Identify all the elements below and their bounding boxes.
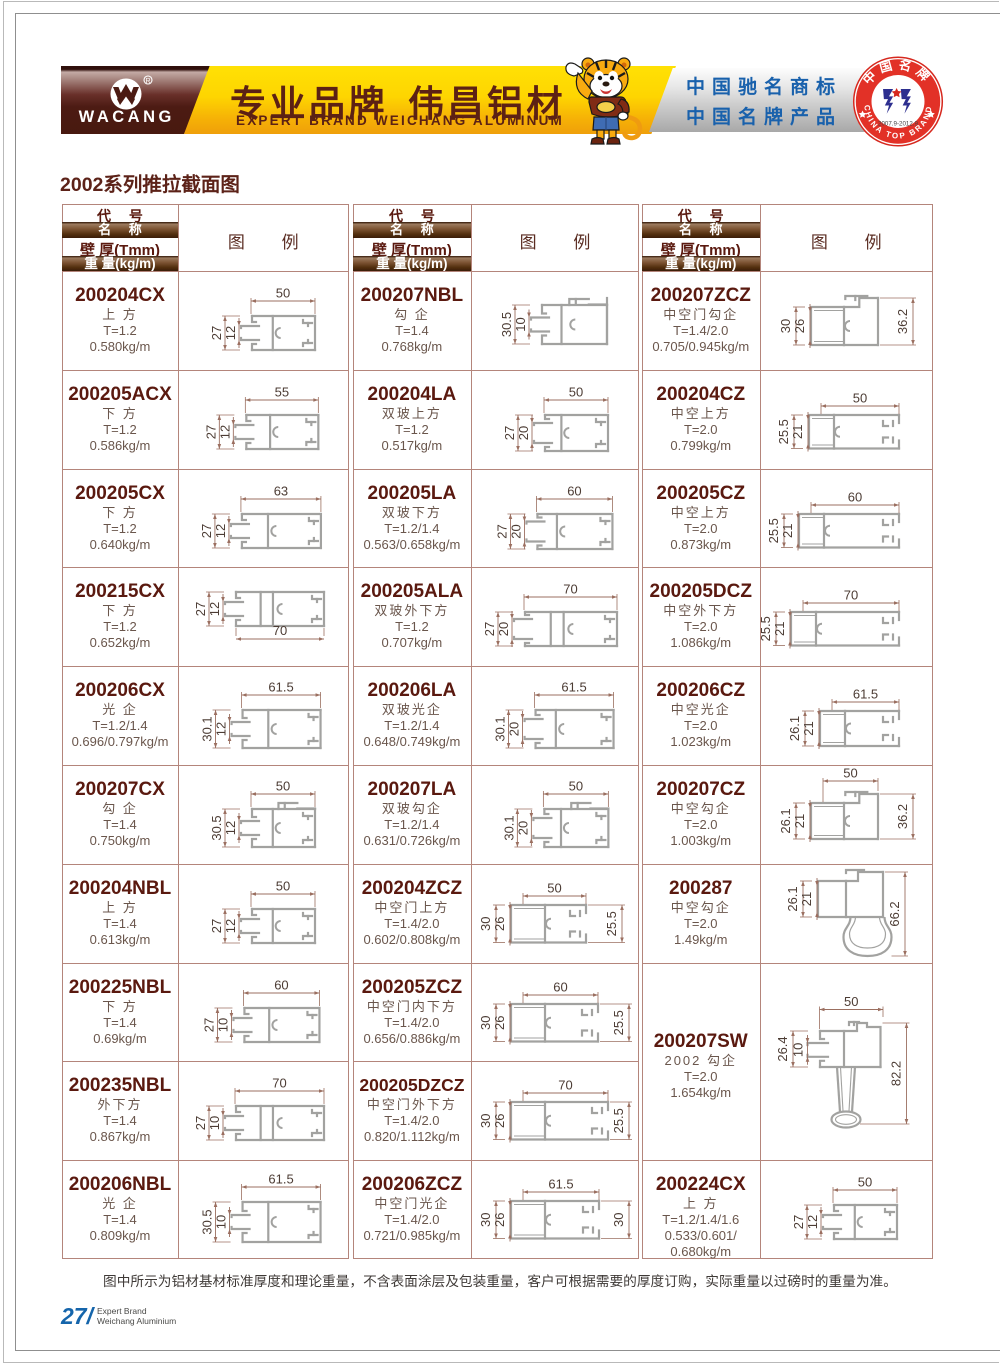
svg-text:12: 12 [214,722,229,736]
svg-text:27: 27 [502,426,517,440]
svg-text:30: 30 [478,1213,493,1227]
svg-text:26: 26 [492,1213,507,1227]
svg-text:50: 50 [569,778,583,793]
svg-text:30: 30 [611,1213,626,1227]
svg-text:20: 20 [508,524,523,538]
svg-text:30.5: 30.5 [200,1210,215,1235]
svg-text:50: 50 [276,878,290,893]
svg-text:50: 50 [569,384,583,399]
svg-text:27: 27 [203,425,218,439]
svg-text:50: 50 [843,765,857,780]
svg-text:30.5: 30.5 [209,815,224,840]
svg-text:61.5: 61.5 [268,680,293,695]
svg-text:27: 27 [482,622,497,636]
svg-text:70: 70 [558,1078,572,1093]
svg-text:36.2: 36.2 [895,804,910,829]
svg-text:60: 60 [553,979,567,994]
svg-text:30: 30 [478,1114,493,1128]
svg-text:12: 12 [223,821,238,835]
svg-text:30: 30 [778,319,793,333]
svg-text:2007.9-2012.9: 2007.9-2012.9 [878,121,918,128]
svg-text:12: 12 [223,919,238,933]
svg-text:70: 70 [844,588,858,603]
svg-text:50: 50 [844,994,858,1009]
svg-text:55: 55 [275,384,289,399]
svg-text:61.5: 61.5 [561,680,586,695]
svg-text:12: 12 [217,425,232,439]
svg-text:26: 26 [492,1114,507,1128]
svg-text:27: 27 [791,1215,806,1229]
svg-text:12: 12 [213,523,228,537]
svg-text:21: 21 [790,424,805,438]
svg-text:20: 20 [516,426,531,440]
svg-text:21: 21 [792,814,807,828]
svg-text:70: 70 [273,623,287,638]
svg-text:12: 12 [805,1215,820,1229]
svg-text:60: 60 [567,483,581,498]
svg-text:60: 60 [274,977,288,992]
svg-text:12: 12 [223,326,238,340]
svg-text:60: 60 [848,489,862,504]
svg-text:10: 10 [215,1017,230,1031]
svg-text:70: 70 [272,1076,286,1091]
svg-text:26.1: 26.1 [787,716,802,741]
svg-text:27: 27 [209,326,224,340]
svg-text:20: 20 [515,821,530,835]
svg-text:36.2: 36.2 [895,309,910,334]
svg-text:26.1: 26.1 [778,808,793,833]
svg-text:50: 50 [276,285,290,300]
svg-text:27: 27 [494,524,509,538]
svg-text:21: 21 [772,622,787,636]
svg-text:30.1: 30.1 [493,717,508,742]
svg-text:50: 50 [853,390,867,405]
svg-text:27: 27 [209,919,224,933]
svg-text:21: 21 [780,523,795,537]
svg-text:30.5: 30.5 [499,312,514,337]
svg-text:61.5: 61.5 [853,687,878,702]
svg-text:27: 27 [193,602,208,616]
svg-text:70: 70 [563,582,577,597]
svg-text:30: 30 [478,916,493,930]
svg-text:26: 26 [492,916,507,930]
svg-text:21: 21 [799,892,814,906]
svg-text:26.1: 26.1 [785,886,800,911]
svg-text:30: 30 [478,1015,493,1029]
svg-text:27: 27 [201,1017,216,1031]
svg-text:10: 10 [791,1042,806,1056]
svg-text:25.5: 25.5 [611,1108,626,1133]
svg-text:66.2: 66.2 [887,901,902,926]
svg-text:30.1: 30.1 [501,815,516,840]
svg-text:50: 50 [547,880,561,895]
svg-text:82.2: 82.2 [888,1060,903,1085]
svg-text:26: 26 [792,319,807,333]
svg-text:21: 21 [801,721,816,735]
svg-text:61.5: 61.5 [268,1172,293,1187]
svg-text:R: R [145,78,150,85]
svg-text:10: 10 [207,1116,222,1130]
svg-text:61.5: 61.5 [548,1177,573,1192]
svg-text:27: 27 [193,1116,208,1130]
svg-text:25.5: 25.5 [604,911,619,936]
svg-text:12: 12 [207,602,222,616]
svg-text:25.5: 25.5 [611,1010,626,1035]
svg-text:27: 27 [199,523,214,537]
svg-text:30.1: 30.1 [200,717,215,742]
svg-text:26.4: 26.4 [775,1036,790,1061]
svg-text:26: 26 [492,1015,507,1029]
svg-text:20: 20 [496,622,511,636]
svg-text:50: 50 [858,1175,872,1190]
svg-text:10: 10 [214,1215,229,1229]
svg-text:25.5: 25.5 [776,419,791,444]
svg-text:63: 63 [274,483,288,498]
svg-text:20: 20 [507,722,522,736]
svg-text:10: 10 [513,317,528,331]
svg-text:25.5: 25.5 [766,518,781,543]
svg-text:50: 50 [276,778,290,793]
